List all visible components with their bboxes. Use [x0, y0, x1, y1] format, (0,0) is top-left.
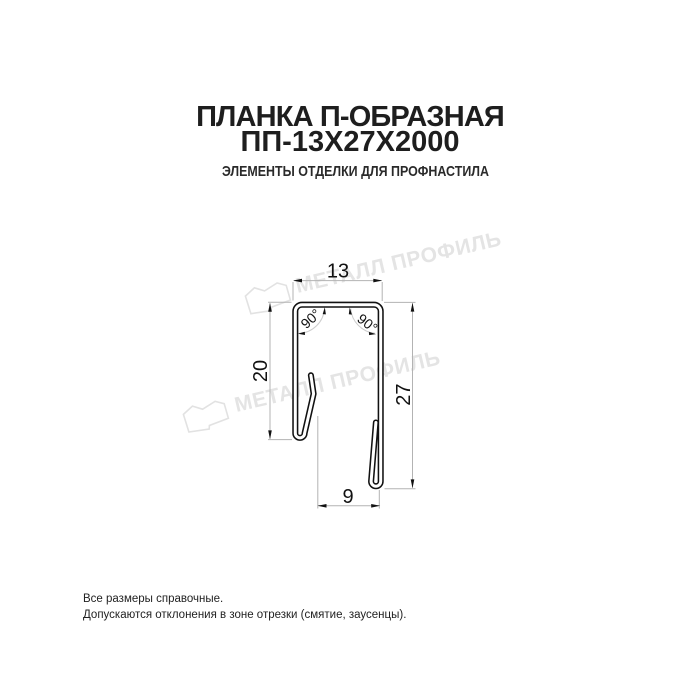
svg-text:90°: 90° [297, 306, 323, 332]
svg-text:13: 13 [327, 261, 349, 283]
svg-text:20: 20 [250, 360, 272, 382]
svg-text:9: 9 [342, 486, 353, 508]
svg-text:90°: 90° [354, 310, 381, 336]
svg-text:МЕТАЛЛ ПРОФИЛЬ: МЕТАЛЛ ПРОФИЛЬ [293, 227, 504, 298]
svg-text:27: 27 [393, 383, 415, 405]
